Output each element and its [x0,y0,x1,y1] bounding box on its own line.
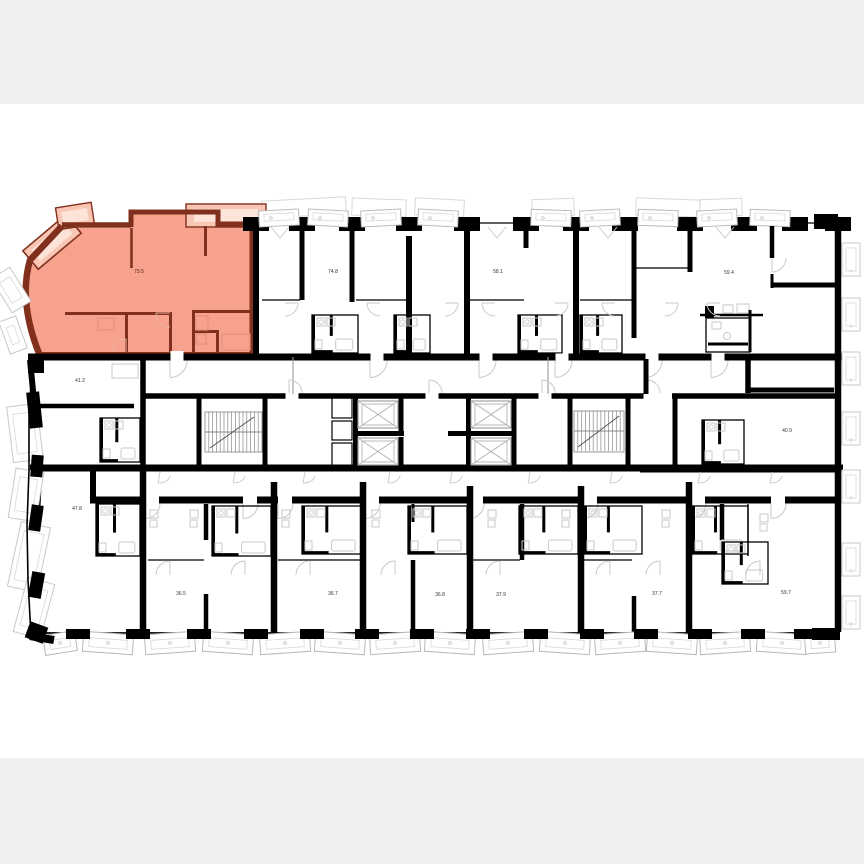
svg-text:37.7: 37.7 [652,591,662,597]
svg-text:36.7: 36.7 [328,591,338,597]
svg-text:59.4: 59.4 [724,270,734,276]
svg-text:59.7: 59.7 [781,590,791,596]
svg-text:73.5: 73.5 [134,269,144,275]
svg-text:36.5: 36.5 [176,591,186,597]
svg-text:36.8: 36.8 [435,592,445,598]
svg-text:47.8: 47.8 [72,506,82,512]
svg-text:41.2: 41.2 [75,378,85,384]
svg-text:58.1: 58.1 [493,269,503,275]
svg-text:37.9: 37.9 [496,592,506,598]
svg-text:74.8: 74.8 [328,269,338,275]
svg-text:40.9: 40.9 [782,428,792,434]
